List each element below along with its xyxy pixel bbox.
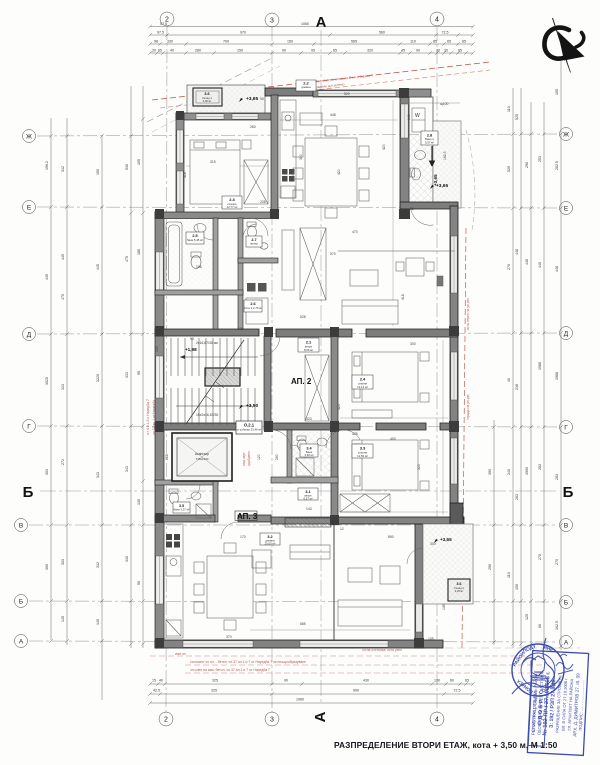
svg-text:5,57 м²: 5,57 м² — [425, 141, 434, 145]
svg-text:чл.член на изм. бетон, чл.37: чл.член на изм. бетон, чл.37 ал.1 и 7 от… — [190, 668, 270, 672]
svg-text:282.5: 282.5 — [555, 161, 559, 170]
svg-text:АП. 3: АП. 3 — [237, 512, 258, 521]
svg-text:+3,50: +3,50 — [246, 403, 258, 409]
svg-text:65: 65 — [462, 39, 466, 43]
svg-text:150: 150 — [515, 584, 519, 590]
svg-text:Б: Б — [19, 599, 23, 606]
svg-text:3: 3 — [270, 717, 274, 724]
svg-text:420: 420 — [382, 144, 386, 150]
svg-text:90: 90 — [190, 337, 194, 341]
svg-text:448: 448 — [555, 266, 559, 272]
svg-text:стълбище 23,46 м²: стълбище 23,46 м² — [237, 428, 262, 432]
svg-text:30: 30 — [436, 48, 440, 52]
svg-text:В: В — [19, 523, 23, 530]
svg-text:20: 20 — [152, 48, 156, 52]
svg-text:90: 90 — [260, 97, 264, 101]
svg-text:п.т.4 и 1-5 и Наредба 7: п.т.4 и 1-5 и Наредба 7 — [146, 399, 150, 435]
svg-text:45: 45 — [401, 48, 405, 52]
svg-text:65: 65 — [465, 679, 469, 683]
svg-text:106: 106 — [196, 265, 202, 269]
svg-text:А: А — [564, 640, 569, 647]
svg-text:90: 90 — [282, 48, 286, 52]
svg-text:303: 303 — [45, 469, 49, 475]
svg-text:325: 325 — [417, 464, 421, 470]
svg-text:418: 418 — [183, 172, 187, 178]
svg-text:418: 418 — [401, 294, 405, 300]
svg-text:А: А — [312, 711, 329, 722]
svg-text:520: 520 — [344, 92, 350, 96]
svg-text:313: 313 — [61, 384, 65, 390]
svg-text:1988: 1988 — [555, 372, 559, 380]
svg-text:420: 420 — [337, 169, 341, 175]
svg-text:3.6: 3.6 — [204, 92, 209, 96]
svg-text:270: 270 — [555, 559, 559, 565]
svg-text:килер: килер — [250, 242, 258, 246]
svg-text:283: 283 — [538, 464, 542, 470]
svg-text:8,06 м²: 8,06 м² — [304, 348, 313, 352]
svg-text:313: 313 — [125, 372, 129, 378]
svg-text:145: 145 — [61, 616, 65, 622]
svg-text:40: 40 — [507, 378, 511, 382]
svg-text:110: 110 — [507, 572, 511, 578]
svg-text:+3,65: +3,65 — [246, 96, 258, 102]
svg-text:283: 283 — [515, 494, 519, 500]
svg-text:196.2: 196.2 — [45, 161, 49, 170]
svg-text:42.5: 42.5 — [153, 689, 160, 693]
svg-text:Е: Е — [564, 206, 569, 213]
svg-text:440: 440 — [538, 262, 542, 268]
svg-text:0,20 м²: 0,20 м² — [455, 589, 464, 593]
svg-text:12,77 м²: 12,77 м² — [227, 205, 238, 209]
svg-text:W: W — [415, 113, 420, 119]
svg-text:270: 270 — [538, 554, 542, 560]
svg-text:А: А — [316, 14, 327, 31]
svg-text:208: 208 — [260, 200, 266, 204]
svg-text:145: 145 — [442, 604, 446, 610]
svg-text:528: 528 — [300, 315, 306, 319]
svg-text:425: 425 — [352, 432, 358, 436]
svg-text:400: 400 — [390, 437, 396, 441]
svg-text:98: 98 — [154, 39, 158, 43]
svg-text:В: В — [564, 523, 568, 530]
svg-text:890: 890 — [388, 535, 394, 539]
svg-text:228: 228 — [165, 454, 169, 460]
svg-text:150: 150 — [96, 169, 100, 175]
svg-text:470: 470 — [125, 256, 129, 262]
svg-text:65: 65 — [333, 48, 337, 52]
svg-text:270: 270 — [507, 264, 511, 270]
svg-text:445: 445 — [61, 254, 65, 260]
svg-text:65: 65 — [447, 39, 451, 43]
svg-text:72.5: 72.5 — [442, 30, 449, 34]
svg-text:60: 60 — [538, 624, 542, 628]
svg-text:320: 320 — [367, 48, 373, 52]
svg-text:85: 85 — [410, 207, 414, 211]
svg-text:Клоз.2 2,76 м²: Клоз.2 2,76 м² — [244, 306, 262, 310]
svg-text:90: 90 — [284, 679, 288, 683]
svg-text:65: 65 — [458, 48, 462, 52]
svg-text:253: 253 — [538, 156, 542, 162]
svg-text:423: 423 — [306, 417, 312, 421]
svg-text:570: 570 — [330, 252, 336, 256]
svg-text:312: 312 — [96, 562, 100, 568]
svg-text:448: 448 — [515, 249, 519, 255]
svg-text:560: 560 — [379, 30, 385, 34]
svg-text:0,90 м²: 0,90 м² — [203, 99, 212, 103]
svg-text:1988: 1988 — [538, 362, 542, 370]
svg-text:123: 123 — [155, 346, 159, 352]
svg-text:130: 130 — [137, 499, 141, 505]
svg-text:1060: 1060 — [301, 22, 309, 26]
svg-text:Д: Д — [27, 332, 32, 339]
svg-text:290: 290 — [525, 162, 529, 168]
svg-text:370: 370 — [226, 635, 232, 639]
svg-text:3220: 3220 — [96, 374, 100, 382]
svg-text:3: 3 — [270, 18, 274, 25]
svg-text:Асансьор: Асансьор — [195, 452, 209, 456]
svg-text:283: 283 — [555, 474, 559, 480]
svg-text:343: 343 — [96, 472, 100, 478]
svg-text:525: 525 — [515, 114, 519, 120]
svg-text:баня 5,48 м²: баня 5,48 м² — [187, 238, 203, 242]
svg-text:3,60 м²: 3,60 м² — [304, 453, 313, 457]
svg-text:Б: Б — [564, 600, 568, 607]
svg-text:390: 390 — [488, 469, 492, 475]
svg-text:Ж: Ж — [26, 134, 32, 141]
svg-text:40: 40 — [170, 48, 174, 52]
svg-text:110: 110 — [507, 106, 511, 112]
svg-text:445: 445 — [45, 274, 49, 280]
svg-text:97.5: 97.5 — [157, 30, 164, 34]
svg-text:6,27 м²: 6,27 м² — [303, 497, 312, 501]
svg-text:140: 140 — [96, 619, 100, 625]
svg-text:303: 303 — [61, 559, 65, 565]
svg-text:+3,65: +3,65 — [440, 537, 452, 542]
svg-text:Д: Д — [564, 331, 569, 338]
svg-text:4: 4 — [435, 17, 439, 24]
svg-text:430: 430 — [363, 679, 369, 683]
svg-text:95: 95 — [311, 48, 315, 52]
svg-text:685: 685 — [300, 622, 306, 626]
svg-text:сграда на ул.рег.: сграда на ул.рег. — [466, 393, 470, 420]
svg-text:300: 300 — [45, 564, 49, 570]
svg-text:565: 565 — [351, 39, 357, 43]
svg-text:140: 140 — [407, 114, 411, 120]
svg-text:изм.черт.: изм.черт. — [242, 452, 246, 466]
svg-text:125: 125 — [525, 614, 529, 620]
svg-text:190: 190 — [238, 327, 244, 331]
svg-text:3020: 3020 — [45, 377, 49, 385]
svg-text:А: А — [19, 639, 24, 646]
svg-text:130: 130 — [434, 679, 440, 683]
svg-text:990: 990 — [353, 689, 359, 693]
svg-text:Б: Б — [563, 484, 574, 501]
svg-text:12: 12 — [340, 527, 344, 531]
svg-text:105: 105 — [555, 89, 559, 95]
svg-text:одобрено: одобрено — [247, 451, 251, 466]
svg-text:98: 98 — [180, 117, 184, 121]
svg-text:238: 238 — [515, 384, 519, 390]
svg-text:Б: Б — [23, 484, 34, 501]
svg-text:470: 470 — [352, 230, 358, 234]
svg-text:15: 15 — [152, 679, 156, 683]
svg-text:15x2x16,67/30: 15x2x16,67/30 — [196, 413, 218, 417]
svg-text:40: 40 — [159, 679, 163, 683]
svg-text:150: 150 — [237, 48, 243, 52]
svg-text:312: 312 — [61, 166, 65, 172]
svg-text:470: 470 — [61, 294, 65, 300]
svg-text:90: 90 — [416, 48, 420, 52]
svg-text:13,12 м²: 13,12 м² — [357, 385, 368, 389]
svg-text:745х1100: 745х1100 — [196, 457, 209, 461]
svg-text:95: 95 — [137, 371, 141, 375]
svg-text:110: 110 — [410, 39, 416, 43]
svg-text:кота терен на ул.рег.: кота терен на ул.рег. — [466, 297, 470, 330]
svg-text:2: 2 — [164, 717, 168, 724]
svg-text:2x16,67/30 см: 2x16,67/30 см — [196, 341, 218, 345]
svg-text:+3,65: +3,65 — [433, 174, 438, 186]
svg-text:325: 325 — [212, 679, 218, 683]
svg-text:25,00 м²: 25,00 м² — [265, 542, 276, 546]
svg-text:1900: 1900 — [525, 467, 529, 475]
svg-text:72.5: 72.5 — [454, 689, 461, 693]
svg-text:448: 448 — [330, 113, 336, 117]
svg-text:56: 56 — [137, 581, 141, 585]
svg-text:105: 105 — [428, 637, 434, 641]
svg-text:240: 240 — [507, 469, 511, 475]
svg-text:272: 272 — [61, 459, 65, 465]
svg-text:Е: Е — [27, 205, 32, 212]
svg-text:Г: Г — [564, 425, 568, 432]
svg-text:970: 970 — [240, 30, 246, 34]
svg-text:330: 330 — [167, 39, 173, 43]
svg-text:445: 445 — [96, 264, 100, 270]
svg-text:1060: 1060 — [296, 698, 304, 702]
svg-text:310: 310 — [125, 556, 129, 562]
svg-text:520: 520 — [507, 166, 511, 172]
svg-text:105: 105 — [137, 159, 141, 165]
svg-text:щ100: щ100 — [440, 102, 449, 106]
svg-text:65: 65 — [158, 48, 162, 52]
svg-text:186: 186 — [137, 249, 141, 255]
svg-text:АП. 2: АП. 2 — [291, 377, 312, 386]
svg-text:260: 260 — [275, 454, 279, 460]
svg-text:448: 448 — [525, 259, 529, 265]
svg-text:57.5: 57.5 — [160, 22, 167, 26]
svg-text:343: 343 — [125, 466, 129, 472]
svg-text:290: 290 — [488, 564, 492, 570]
svg-text:300: 300 — [430, 542, 436, 546]
svg-text:дневна: дневна — [301, 85, 311, 89]
svg-text:170: 170 — [240, 535, 246, 539]
svg-text:баня 3,27 м²: баня 3,27 м² — [173, 508, 189, 512]
svg-text:162.5: 162.5 — [443, 151, 447, 160]
svg-text:12,50 м²: 12,50 м² — [357, 454, 368, 458]
svg-text:30: 30 — [444, 48, 448, 52]
svg-text:280: 280 — [195, 48, 201, 52]
svg-text:530: 530 — [125, 164, 129, 170]
svg-text:+1,98: +1,98 — [185, 347, 197, 352]
svg-text:143: 143 — [306, 507, 312, 511]
svg-text:РАЗПРЕДЕЛЕНИЕ ВТОРИ ЕТАЖ, кот: РАЗПРЕДЕЛЕНИЕ ВТОРИ ЕТАЖ, кота + 3,50 м,… — [334, 740, 558, 750]
svg-text:150: 150 — [287, 39, 293, 43]
svg-text:чл.на отстъпка, кота узел: чл.на отстъпка, кота узел — [362, 648, 402, 652]
svg-text:60: 60 — [450, 679, 454, 683]
svg-text:325: 325 — [211, 689, 217, 693]
svg-text:4: 4 — [435, 717, 439, 724]
svg-text:Ж: Ж — [563, 132, 569, 139]
svg-text:300: 300 — [299, 154, 303, 160]
svg-text:съгласно чл.пл. - бетон, чл.37: съгласно чл.пл. - бетон, чл.37 ал.1 и 7 … — [190, 660, 306, 664]
svg-text:120: 120 — [257, 454, 261, 460]
svg-text:260: 260 — [250, 125, 256, 129]
svg-text:162.5: 162.5 — [555, 621, 559, 630]
svg-text:700: 700 — [223, 39, 229, 43]
svg-text:3.6: 3.6 — [457, 582, 462, 586]
svg-text:85: 85 — [433, 39, 437, 43]
svg-text:315: 315 — [210, 160, 216, 164]
svg-text:изм.чл.: изм.чл. — [175, 652, 186, 656]
svg-text:423: 423 — [337, 404, 341, 410]
svg-text:300: 300 — [410, 342, 416, 346]
svg-text:Г: Г — [27, 424, 31, 431]
